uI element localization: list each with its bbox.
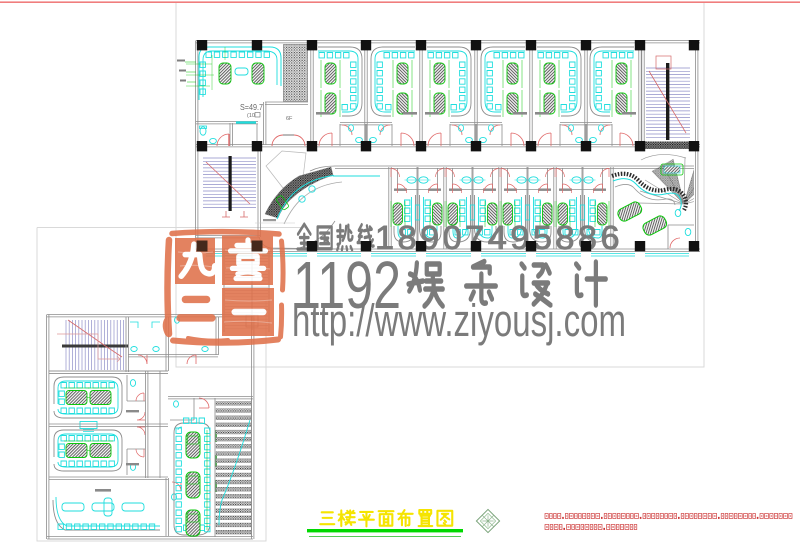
svg-text:(10: (10 — [247, 113, 255, 119]
svg-text:18907495886: 18907495886 — [375, 220, 623, 257]
svg-text:S=49.7: S=49.7 — [240, 103, 263, 112]
svg-text:6F: 6F — [286, 116, 293, 122]
svg-text:http://www.ziyousj.com: http://www.ziyousj.com — [292, 295, 626, 346]
